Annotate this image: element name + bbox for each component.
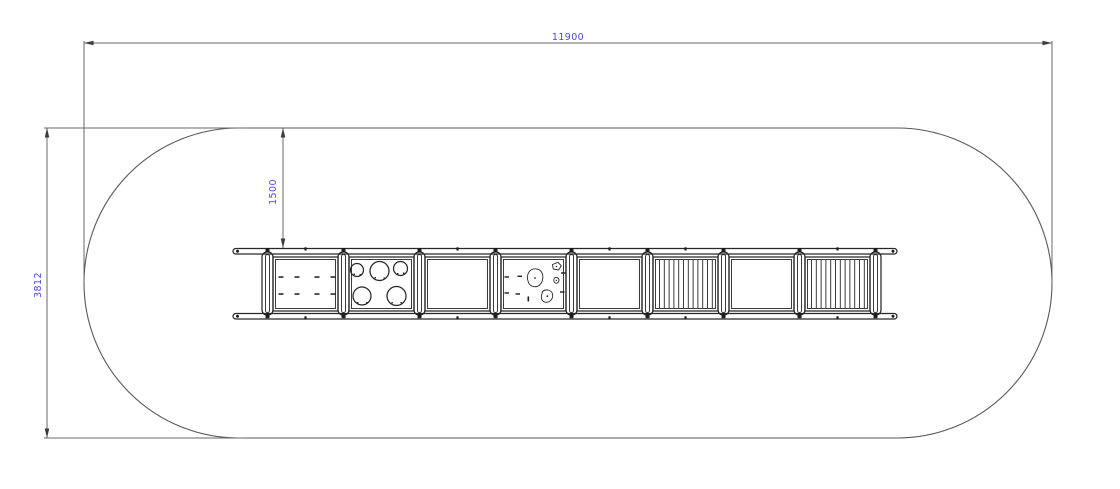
dimension-width-value: 11900 <box>552 32 584 43</box>
post <box>870 252 881 315</box>
panel-7-open <box>729 257 794 311</box>
post <box>262 252 273 315</box>
bars <box>812 260 865 308</box>
dimension-overall-width: 11900 <box>84 32 1052 283</box>
rail-end-cap-icon <box>236 315 239 318</box>
dimension-clearance-offset: 1500 <box>268 128 285 248</box>
drawing-canvas: 11900 3812 1500 <box>0 0 1120 489</box>
top-rail <box>233 249 897 255</box>
rung-marks <box>279 276 336 295</box>
rail-end-cap-icon <box>236 250 239 253</box>
climb-holes <box>351 262 408 306</box>
rail-end-cap-icon <box>892 250 895 253</box>
bars <box>660 260 713 308</box>
arrowhead-left-icon <box>84 41 94 46</box>
panel-6-vertical-bars <box>653 257 718 311</box>
safety-zone-outline <box>84 128 1052 438</box>
post <box>566 252 577 315</box>
post <box>414 252 425 315</box>
panel-5-open <box>577 257 642 311</box>
panel-1-rung-grid <box>273 257 338 311</box>
dimension-overall-depth: 3812 <box>33 128 246 438</box>
hold-peg <box>528 296 530 301</box>
post <box>338 252 349 315</box>
panel-3-open <box>425 257 490 311</box>
dimension-offset-value: 1500 <box>268 179 279 205</box>
post <box>490 252 501 315</box>
post <box>718 252 729 315</box>
post <box>794 252 805 315</box>
play-equipment <box>233 247 897 319</box>
dimension-depth-value: 3812 <box>33 272 44 298</box>
rail-end-cap-icon <box>892 315 895 318</box>
arrowhead-up-icon <box>45 128 50 138</box>
arrowhead-down-icon <box>281 239 286 249</box>
climbing-holds <box>505 262 566 302</box>
plan-drawing: 11900 3812 1500 <box>0 0 1120 489</box>
posts <box>262 252 881 315</box>
arrowhead-down-icon <box>45 429 50 439</box>
panel-2-hole-climb <box>349 257 414 311</box>
panel-8-vertical-bars <box>805 257 870 311</box>
post <box>642 252 653 315</box>
arrowhead-up-icon <box>281 128 286 138</box>
arrowhead-right-icon <box>1043 41 1053 46</box>
panel-4-climbing-holds <box>501 257 566 311</box>
